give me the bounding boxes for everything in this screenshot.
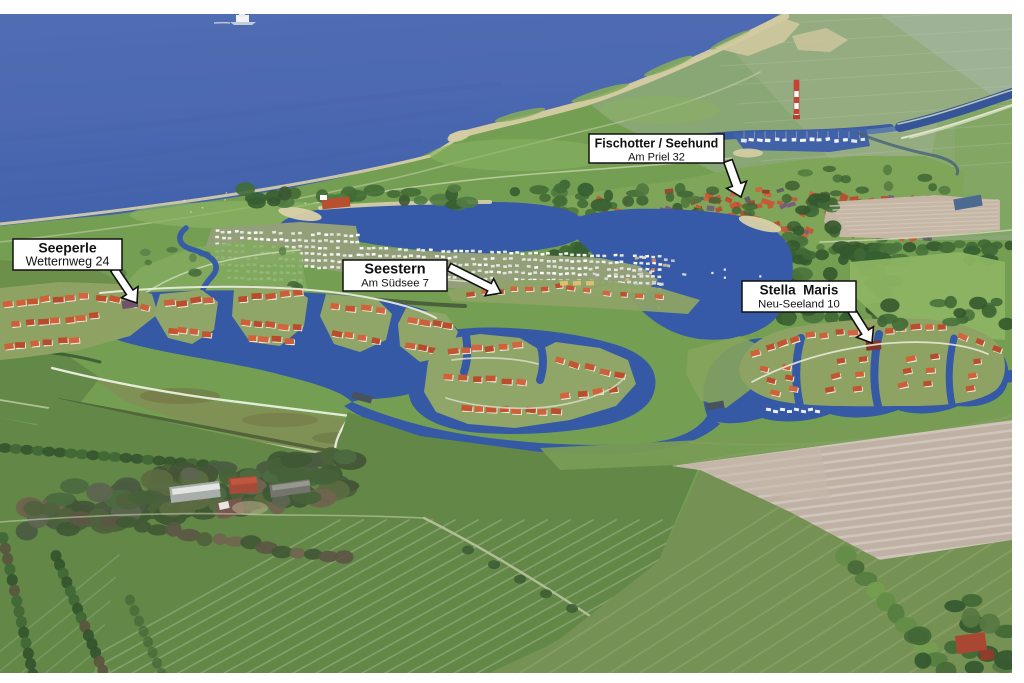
svg-text:Neu-Seeland 10: Neu-Seeland 10 [758,299,840,311]
svg-text:Stella Maris: Stella Maris [760,283,839,298]
svg-text:Seeperle: Seeperle [38,240,97,256]
svg-text:Seestern: Seestern [364,262,425,278]
svg-text:Fischotter / Seehund: Fischotter / Seehund [595,137,719,151]
svg-text:Am Priel 32: Am Priel 32 [628,152,685,164]
svg-text:Am Südsee 7: Am Südsee 7 [361,278,429,290]
svg-text:Wetternweg 24: Wetternweg 24 [26,255,110,269]
